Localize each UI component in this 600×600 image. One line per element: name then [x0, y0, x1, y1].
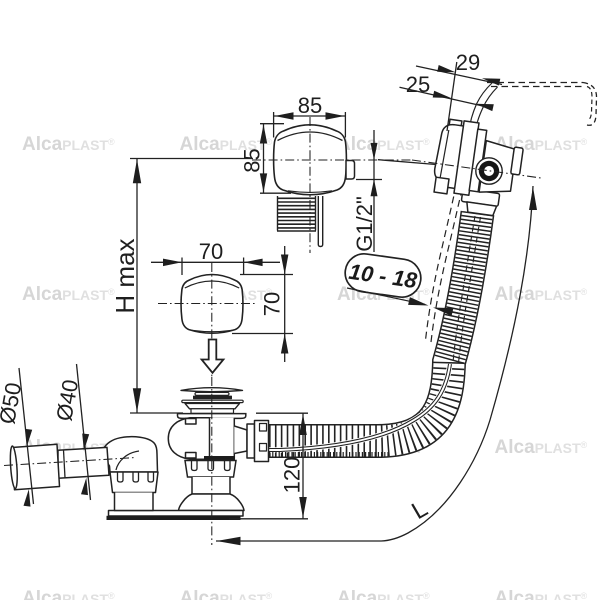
svg-text:25: 25 [406, 72, 430, 97]
svg-text:G1/2": G1/2" [352, 196, 377, 252]
svg-text:AlcaPLAST®: AlcaPLAST® [337, 134, 430, 155]
svg-text:AlcaPLAST®: AlcaPLAST® [495, 437, 588, 458]
svg-text:85: 85 [298, 93, 322, 118]
svg-text:29: 29 [456, 50, 480, 75]
svg-text:70: 70 [260, 292, 285, 316]
svg-text:AlcaPLAST®: AlcaPLAST® [495, 284, 588, 305]
svg-text:AlcaPLAST®: AlcaPLAST® [22, 134, 115, 155]
svg-text:85: 85 [239, 148, 264, 172]
svg-text:120: 120 [280, 457, 305, 494]
svg-text:70: 70 [199, 239, 223, 264]
svg-text:AlcaPLAST®: AlcaPLAST® [22, 284, 115, 305]
svg-text:H max: H max [110, 238, 140, 313]
